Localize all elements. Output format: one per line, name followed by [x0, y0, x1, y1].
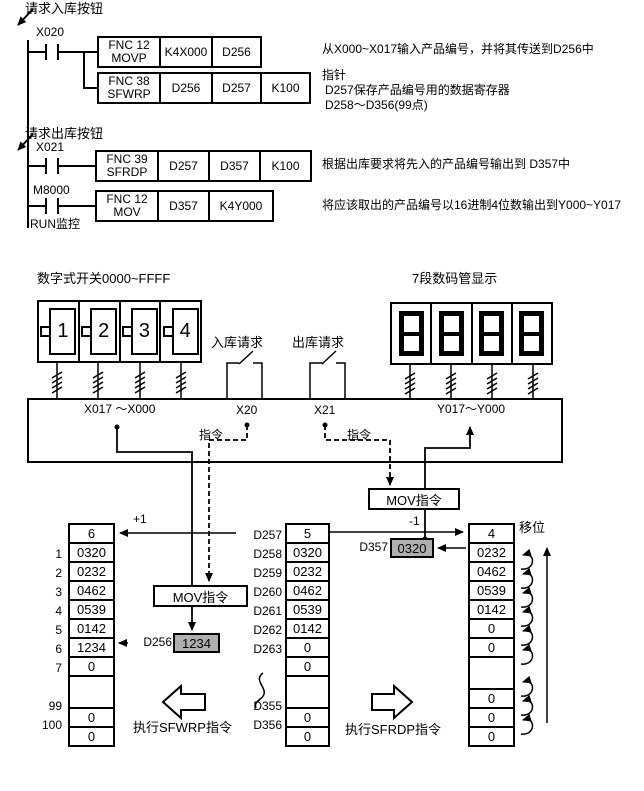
- seven-seg-digit: [432, 304, 472, 363]
- table-cell: 0: [285, 707, 330, 728]
- fnc-mov-cell: FNC 12 MOV: [95, 190, 159, 222]
- plc-bus: [27, 398, 563, 463]
- digit-switch: 1 2 3 4: [37, 300, 202, 363]
- table-cell-blank: [468, 656, 515, 690]
- pushbutton-out-icon: [310, 351, 345, 398]
- table-cell: 0142: [68, 618, 115, 639]
- table-cell: 0539: [68, 599, 115, 620]
- table-cell-highlight: 0: [468, 726, 515, 747]
- operand-cell: D256: [211, 36, 262, 68]
- operand-cell: K4Y000: [208, 190, 274, 222]
- comment-arrow-out: [18, 134, 33, 150]
- instruction-row-sfrdp: FNC 39 SFRDP D257 D357 K100: [95, 150, 312, 182]
- digit-switch-4[interactable]: 4: [161, 302, 200, 361]
- table-cell: 0: [68, 726, 115, 747]
- fnc-mnemonic: MOVP: [111, 52, 146, 65]
- table-cell-highlight: 0462: [468, 561, 515, 582]
- fnc-sfwrp-cell: FNC 38 SFWRP: [97, 72, 161, 104]
- table-cell-highlight: 0: [468, 688, 515, 709]
- table-cell: 0: [285, 656, 330, 677]
- table-cell: 0: [285, 637, 330, 658]
- ladder-rail-and-rungs: [18, 9, 97, 228]
- table-cell: 0320: [285, 542, 330, 563]
- seg-eight-icon: [479, 311, 504, 356]
- instruction-row-mov: FNC 12 MOV D357 K4Y000: [95, 190, 274, 222]
- seven-seg-digit: [513, 304, 551, 363]
- seven-seg-display: [390, 302, 553, 365]
- cable-drop-icons: [52, 363, 538, 399]
- digit-value: 2: [90, 308, 117, 355]
- mov-box-right: MOV指令: [368, 488, 460, 510]
- seven-seg-digit: [473, 304, 513, 363]
- table-cell-highlight: 0: [468, 707, 515, 728]
- digit-value: 1: [49, 308, 76, 355]
- digit-value: 4: [172, 308, 199, 355]
- d357-value-cell: 0320: [390, 538, 434, 558]
- instruction-row-sfwrp: FNC 38 SFWRP D256 D257 K100: [97, 72, 311, 104]
- left-table-row-numbers: 12 34 56 7 99100: [26, 545, 62, 735]
- operand-cell: K100: [260, 72, 311, 104]
- table-cell: 0: [285, 726, 330, 747]
- operand-cell: K4X000: [159, 36, 213, 68]
- table-cell-highlight: 0539: [468, 580, 515, 601]
- middle-table-pointer-cell: 5: [285, 523, 330, 544]
- contact-x021-icon: [28, 158, 95, 174]
- table-cell: 0462: [68, 580, 115, 601]
- fnc-mnemonic: SFWRP: [107, 88, 150, 101]
- fnc-mnemonic: SFRDP: [107, 166, 148, 179]
- table-cell-highlight: 0: [468, 637, 515, 658]
- pushbutton-in-icon: [227, 351, 262, 398]
- table-cell: 0462: [285, 580, 330, 601]
- table-cell-blank: [68, 675, 115, 709]
- fnc-movp-cell: FNC 12 MOVP: [97, 36, 161, 68]
- seven-seg-digit: [392, 304, 432, 363]
- table-cell-highlight: 0: [468, 618, 515, 639]
- instruction-row-movp: FNC 12 MOVP K4X000 D256: [97, 36, 262, 68]
- table-cell: 0232: [285, 561, 330, 582]
- left-table: 6 0320 0232 0462 0539 0142 1234 0 0 0: [68, 523, 115, 747]
- table-cell: 0232: [68, 561, 115, 582]
- digit-switch-2[interactable]: 2: [80, 302, 121, 361]
- contact-m8000-icon: [28, 198, 95, 214]
- operand-cell: D257: [157, 150, 210, 182]
- digit-value: 3: [131, 308, 158, 355]
- mov-box-left: MOV指令: [153, 585, 248, 607]
- fnc-mnemonic: MOV: [113, 206, 140, 219]
- operand-cell: D357: [208, 150, 261, 182]
- table-cell-highlight: 0232: [468, 542, 515, 563]
- digit-switch-1[interactable]: 1: [39, 302, 80, 361]
- table-cell-highlight: 0142: [468, 599, 515, 620]
- left-table-pointer-cell: 6: [68, 523, 115, 544]
- table-cell: 0142: [285, 618, 330, 639]
- operand-cell: D357: [157, 190, 210, 222]
- fnc-sfrdp-cell: FNC 39 SFRDP: [95, 150, 159, 182]
- table-cell: 0: [68, 707, 115, 728]
- table-cell: 0: [68, 656, 115, 677]
- exec-sfrdp-arrow-icon: [372, 686, 412, 718]
- seg-eight-icon: [399, 311, 424, 356]
- table-cell-highlight: 1234: [68, 637, 115, 658]
- right-table: 4 0232 0462 0539 0142 0 0 0 0 0: [468, 523, 515, 747]
- right-table-pointer-cell: 4: [468, 523, 515, 544]
- table-cell-blank: [285, 675, 330, 709]
- plc-shift-register-diagram: 请求入库按钮 X020 FNC 12 MOVP K4X000 D256 FNC …: [0, 0, 644, 791]
- table-cell: 0539: [285, 599, 330, 620]
- seg-eight-icon: [439, 311, 464, 356]
- d256-value-cell: 1234: [173, 633, 220, 653]
- digit-switch-3[interactable]: 3: [121, 302, 162, 361]
- seg-eight-icon: [519, 311, 544, 356]
- middle-table-register-labels: D257 D258D259 D260D261 D262D263 D355D356: [236, 526, 282, 735]
- operand-cell: D257: [211, 72, 262, 104]
- contact-x020-icon: [28, 44, 97, 60]
- table-cell: 0320: [68, 542, 115, 563]
- operand-cell: K100: [259, 150, 312, 182]
- operand-cell: D256: [159, 72, 213, 104]
- comment-arrow-in: [18, 9, 33, 25]
- middle-table: 5 0320 0232 0462 0539 0142 0 0 0 0: [285, 523, 330, 747]
- shift-loop-icons: [521, 554, 533, 734]
- exec-sfwrp-arrow-icon: [163, 686, 205, 718]
